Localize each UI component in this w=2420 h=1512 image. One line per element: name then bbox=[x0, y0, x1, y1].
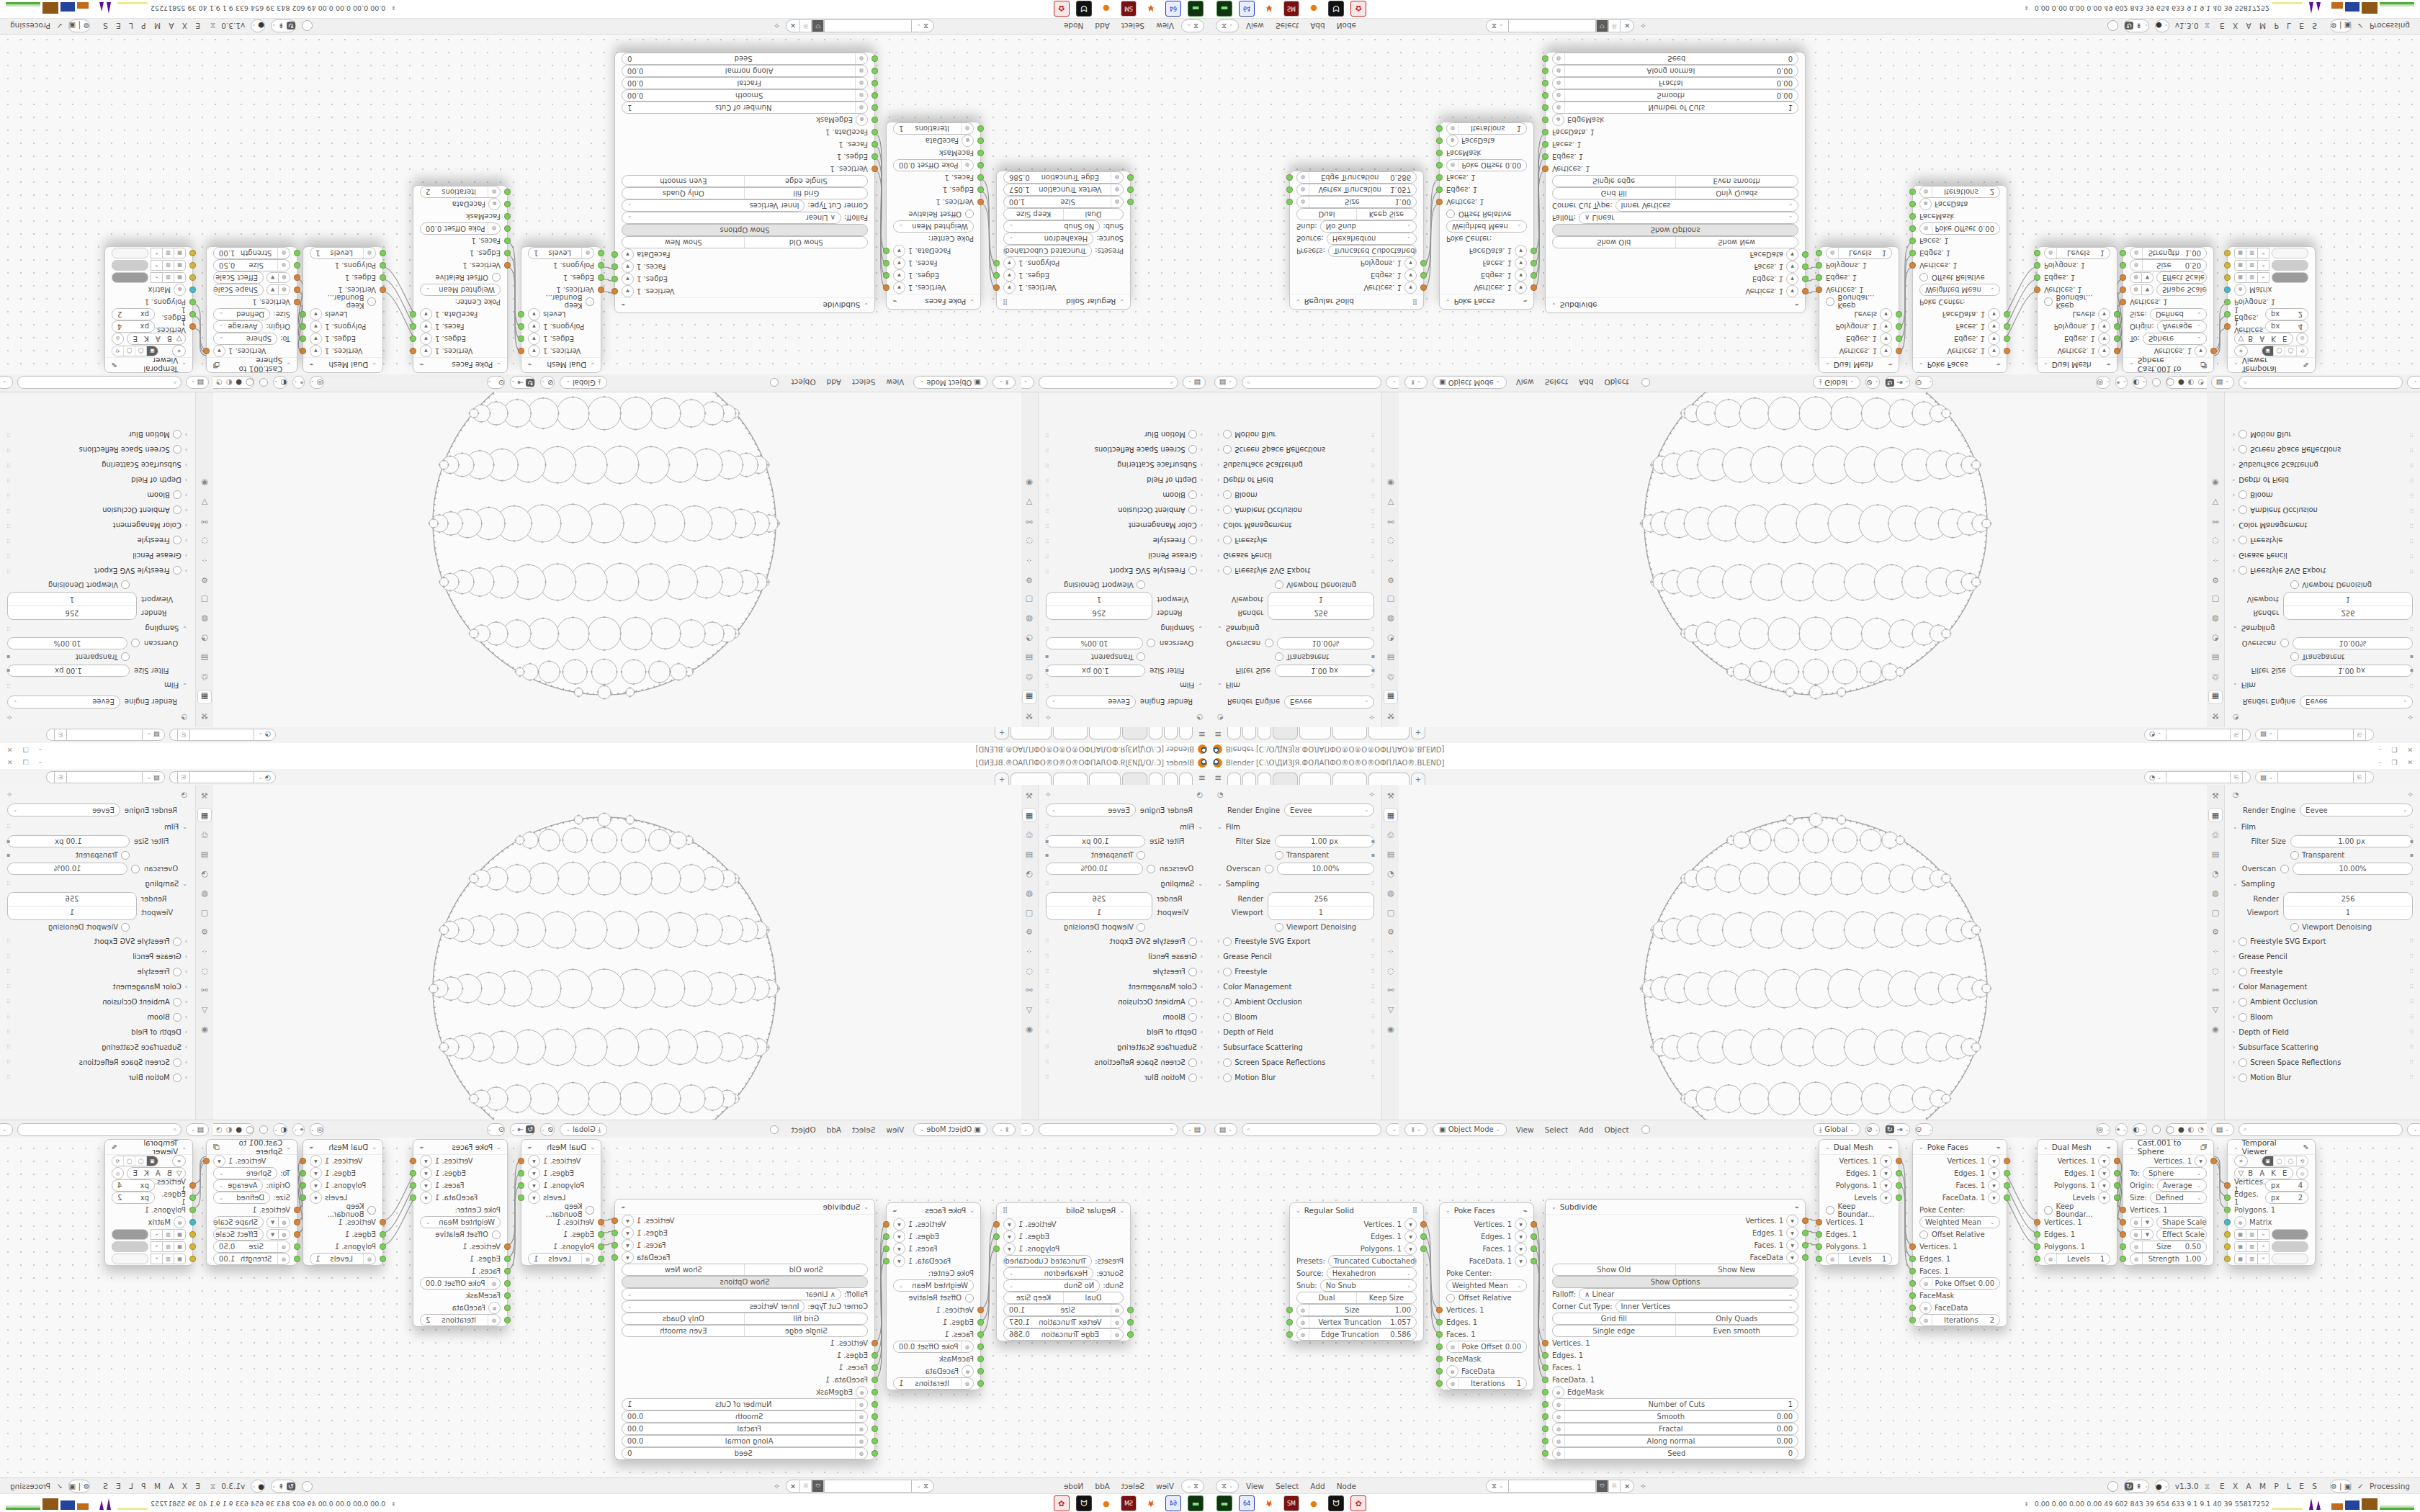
node-regular-solid[interactable]: ⌄Regular Solid⠿Vertices. 1▼Edges. 1▼Poly… bbox=[996, 171, 1131, 310]
socket-green[interactable] bbox=[1420, 260, 1427, 266]
node-editor-menu-node[interactable]: Node bbox=[1337, 22, 1356, 30]
socket-green[interactable] bbox=[1436, 138, 1443, 144]
socket-green[interactable] bbox=[598, 1243, 604, 1250]
socket-yellow[interactable] bbox=[2224, 1231, 2231, 1238]
socket-green[interactable] bbox=[1816, 1256, 1822, 1262]
taskbar-app-icon-4[interactable]: ● bbox=[1306, 1, 1322, 17]
socket-green[interactable] bbox=[977, 1319, 984, 1326]
ball-dropdown[interactable]: ● ⌄ bbox=[2155, 1480, 2169, 1493]
socket-orange[interactable] bbox=[2210, 1158, 2217, 1164]
socket-green[interactable] bbox=[871, 1352, 878, 1359]
socket-green[interactable] bbox=[2224, 1207, 2231, 1213]
socket-orange[interactable] bbox=[871, 166, 878, 172]
node-editor-menu-select[interactable]: Select bbox=[1276, 1482, 1299, 1490]
socket-green[interactable] bbox=[504, 1280, 511, 1287]
socket-green[interactable] bbox=[1531, 1258, 1537, 1264]
taskbar-app-icon-1[interactable]: 64 bbox=[1165, 1, 1181, 17]
socket-orange[interactable] bbox=[294, 299, 300, 305]
socket-green[interactable] bbox=[189, 299, 196, 305]
node-dual-mesh[interactable]: ⌄Dual Mesh⌁Vertices. 1▼Edges. 1▼Polygons… bbox=[1819, 1139, 1899, 1266]
socket-green[interactable] bbox=[1436, 186, 1443, 193]
socket-green[interactable] bbox=[871, 1364, 878, 1371]
fake-user-shield-button[interactable]: 🛡 bbox=[812, 19, 824, 32]
socket-green[interactable] bbox=[300, 336, 306, 342]
socket-green[interactable] bbox=[504, 201, 511, 207]
node-editor-menu-add[interactable]: Add bbox=[1310, 1482, 1325, 1490]
node-regular-solid[interactable]: ⌄Regular Solid⠿Vertices. 1▼Edges. 1▼Poly… bbox=[996, 1202, 1131, 1341]
node-dual-mesh[interactable]: ⌄Dual Mesh⌁Vertices. 1▼Edges. 1▼Polygons… bbox=[302, 246, 383, 373]
socket-orange[interactable] bbox=[1542, 166, 1549, 172]
node-cast-001-to-sphere[interactable]: ⌄Cast.001 to Sphere🗇Vertices. 1▼To:Spher… bbox=[206, 1139, 297, 1266]
unlink-button[interactable]: ✕ bbox=[786, 1480, 799, 1493]
taskbar-app-icon-0[interactable]: ▬ bbox=[1216, 1, 1232, 17]
socket-green[interactable] bbox=[294, 1243, 300, 1250]
socket-green[interactable] bbox=[1802, 1254, 1809, 1261]
socket-green[interactable] bbox=[871, 1426, 878, 1432]
taskbar-app-icon-0[interactable]: ▬ bbox=[1188, 1495, 1204, 1511]
examples-menu[interactable]: E X A M P L E S bbox=[2220, 22, 2320, 30]
socket-green[interactable] bbox=[2004, 336, 2010, 342]
socket-orange[interactable] bbox=[611, 288, 618, 294]
node-poke-faces[interactable]: ⌄Poke Faces⌁Vertices. 1▼Edges. 1▼Faces. … bbox=[886, 1202, 981, 1390]
socket-orange[interactable] bbox=[518, 1158, 524, 1164]
unlink-button[interactable]: ✕ bbox=[1621, 1480, 1634, 1493]
node-cast-001-to-sphere[interactable]: ⌄Cast.001 to Sphere🗇Vertices. 1▼To:Spher… bbox=[2123, 1139, 2214, 1266]
node-subdivide[interactable]: ⌄Subdivide⌁Vertices. 1▼Edges. 1▼Faces. 1… bbox=[614, 52, 875, 313]
socket-green[interactable] bbox=[871, 153, 878, 160]
socket-green[interactable] bbox=[300, 323, 306, 330]
tree-name-field[interactable] bbox=[824, 19, 911, 32]
socket-green[interactable] bbox=[1542, 1438, 1549, 1444]
socket-orange[interactable] bbox=[1802, 288, 1809, 294]
socket-green[interactable] bbox=[871, 1413, 878, 1420]
socket-green[interactable] bbox=[518, 336, 524, 342]
socket-green[interactable] bbox=[1436, 125, 1443, 132]
socket-orange[interactable] bbox=[1436, 1307, 1443, 1313]
settings-group[interactable]: ⚙ | ▣ bbox=[2330, 19, 2352, 32]
socket-green[interactable] bbox=[1816, 274, 1822, 281]
socket-orange[interactable] bbox=[1896, 348, 1902, 354]
socket-green[interactable] bbox=[518, 1194, 524, 1201]
socket-green[interactable] bbox=[883, 1233, 889, 1240]
socket-green[interactable] bbox=[1436, 1356, 1443, 1362]
socket-green[interactable] bbox=[1909, 225, 1916, 232]
taskbar-app-icon-1[interactable]: 64 bbox=[1239, 1, 1255, 17]
snap-group[interactable]: ↻ ⇞ ⌄ bbox=[271, 19, 296, 32]
socket-orange[interactable] bbox=[300, 1158, 306, 1164]
socket-green[interactable] bbox=[2224, 1194, 2231, 1201]
socket-orange[interactable] bbox=[598, 287, 604, 293]
socket-green[interactable] bbox=[977, 162, 984, 168]
tree-name-field[interactable] bbox=[1509, 1480, 1596, 1493]
tree-select-button[interactable]: ⧖ ⌄ bbox=[911, 19, 934, 32]
socket-green[interactable] bbox=[189, 1194, 196, 1201]
socket-green[interactable] bbox=[2114, 1170, 2120, 1176]
socket-green[interactable] bbox=[2120, 262, 2126, 269]
socket-green[interactable] bbox=[1909, 1280, 1916, 1287]
socket-orange[interactable] bbox=[1816, 1219, 1822, 1225]
node-editor-menu-node[interactable]: Node bbox=[1337, 1482, 1356, 1490]
socket-green[interactable] bbox=[1420, 272, 1427, 279]
node-temporal-viewer[interactable]: ⌄Temporal Viewer✎👁▣◯◯⟲▽B A K E◎Vertices.… bbox=[2227, 1139, 2316, 1266]
node-poke-faces[interactable]: ⌄Poke Faces⌁Vertices. 1▼Edges. 1▼Faces. … bbox=[1912, 1139, 2007, 1327]
socket-green[interactable] bbox=[380, 262, 386, 269]
node-poke-faces[interactable]: ⌄Poke Faces⌁Vertices. 1▼Edges. 1▼Faces. … bbox=[1912, 185, 2007, 373]
socket-green[interactable] bbox=[1531, 260, 1537, 266]
socket-green[interactable] bbox=[1542, 1352, 1549, 1359]
socket-green[interactable] bbox=[598, 274, 604, 281]
socket-green[interactable] bbox=[1909, 213, 1916, 220]
socket-green[interactable] bbox=[410, 1194, 416, 1201]
socket-orange[interactable] bbox=[2224, 1182, 2231, 1189]
pin-icon[interactable]: ✧ bbox=[774, 1482, 780, 1490]
socket-green[interactable] bbox=[1802, 1242, 1809, 1248]
socket-green[interactable] bbox=[1816, 1231, 1822, 1238]
socket-green[interactable] bbox=[300, 1194, 306, 1201]
socket-green[interactable] bbox=[1531, 1233, 1537, 1240]
socket-orange[interactable] bbox=[993, 1221, 1000, 1228]
node-editor-menu-add[interactable]: Add bbox=[1310, 22, 1325, 30]
socket-green[interactable] bbox=[2004, 1194, 2010, 1201]
socket-green[interactable] bbox=[2114, 1182, 2120, 1189]
socket-green[interactable] bbox=[1909, 1317, 1916, 1323]
socket-green[interactable] bbox=[1127, 1319, 1134, 1326]
socket-green[interactable] bbox=[1127, 186, 1134, 193]
taskbar-app-icon-0[interactable]: ▬ bbox=[1216, 1495, 1232, 1511]
socket-orange[interactable] bbox=[2224, 323, 2231, 330]
socket-green[interactable] bbox=[1802, 1230, 1809, 1236]
socket-orange[interactable] bbox=[1420, 1221, 1427, 1228]
ball-dropdown[interactable]: ● ⌄ bbox=[251, 19, 265, 32]
processing-check-icon[interactable]: ✓ bbox=[2357, 1482, 2364, 1490]
socket-green[interactable] bbox=[611, 1230, 618, 1236]
node-editor[interactable]: ⌄Regular Solid⠿Vertices. 1▼Edges. 1▼Poly… bbox=[0, 1138, 1210, 1477]
taskbar-app-icon-4[interactable]: ● bbox=[1098, 1, 1114, 17]
socket-green[interactable] bbox=[2004, 323, 2010, 330]
socket-green[interactable] bbox=[977, 186, 984, 193]
socket-green[interactable] bbox=[883, 1246, 889, 1252]
socket-green[interactable] bbox=[1909, 189, 1916, 195]
socket-orange[interactable] bbox=[2120, 1219, 2126, 1225]
node-regular-solid[interactable]: ⌄Regular Solid⠿Vertices. 1▼Edges. 1▼Poly… bbox=[1289, 171, 1424, 310]
socket-green[interactable] bbox=[1542, 141, 1549, 148]
socket-green[interactable] bbox=[1531, 248, 1537, 254]
socket-orange[interactable] bbox=[977, 1307, 984, 1313]
socket-orange[interactable] bbox=[1816, 287, 1822, 293]
socket-orange[interactable] bbox=[189, 323, 196, 330]
socket-orange[interactable] bbox=[189, 1182, 196, 1189]
node-editor-menu-view[interactable]: View bbox=[1246, 1482, 1264, 1490]
socket-green[interactable] bbox=[1896, 311, 1902, 318]
socket-cyan[interactable] bbox=[189, 287, 196, 293]
socket-orange[interactable] bbox=[203, 348, 210, 354]
socket-yellow[interactable] bbox=[2224, 250, 2231, 256]
taskbar-app-icon-5[interactable]: ᗢ bbox=[1076, 1, 1092, 17]
socket-green[interactable] bbox=[518, 311, 524, 318]
socket-green[interactable] bbox=[504, 250, 511, 256]
socket-green[interactable] bbox=[410, 311, 416, 318]
new-copy-button[interactable]: ⎘ bbox=[1608, 1480, 1621, 1493]
socket-orange[interactable] bbox=[2114, 348, 2120, 354]
socket-green[interactable] bbox=[380, 1243, 386, 1250]
socket-green[interactable] bbox=[1420, 1233, 1427, 1240]
snap-group[interactable]: ↻ ⇞ ⌄ bbox=[271, 1480, 296, 1493]
socket-green[interactable] bbox=[1286, 174, 1293, 181]
taskbar-app-icon-2[interactable]: 🦊 bbox=[1261, 1, 1277, 17]
socket-green[interactable] bbox=[611, 264, 618, 270]
socket-green[interactable] bbox=[504, 1317, 511, 1323]
socket-green[interactable] bbox=[1542, 55, 1549, 62]
pin-icon[interactable]: ✧ bbox=[1640, 1482, 1646, 1490]
socket-green[interactable] bbox=[1542, 1450, 1549, 1457]
socket-cyan[interactable] bbox=[189, 1219, 196, 1225]
socket-green[interactable] bbox=[1909, 1268, 1916, 1274]
node-dual-mesh[interactable]: ⌄Dual Mesh⌁Vertices. 1▼Edges. 1▼Polygons… bbox=[521, 1139, 601, 1266]
socket-orange[interactable] bbox=[2210, 348, 2217, 354]
node-dual-mesh[interactable]: ⌄Dual Mesh⌁Vertices. 1▼Edges. 1▼Polygons… bbox=[302, 1139, 383, 1266]
socket-yellow[interactable] bbox=[2224, 262, 2231, 269]
examples-menu[interactable]: E X A M P L E S bbox=[100, 1482, 200, 1490]
socket-green[interactable] bbox=[871, 1438, 878, 1444]
socket-orange[interactable] bbox=[2034, 1219, 2040, 1225]
socket-green[interactable] bbox=[504, 1292, 511, 1299]
socket-green[interactable] bbox=[993, 272, 1000, 279]
socket-orange[interactable] bbox=[294, 274, 300, 281]
socket-green[interactable] bbox=[871, 80, 878, 86]
socket-yellow[interactable] bbox=[189, 250, 196, 256]
socket-green[interactable] bbox=[1542, 1426, 1549, 1432]
socket-green[interactable] bbox=[2034, 1231, 2040, 1238]
node-editor[interactable]: ⌄Regular Solid⠿Vertices. 1▼Edges. 1▼Poly… bbox=[1210, 1138, 2420, 1477]
socket-green[interactable] bbox=[1816, 262, 1822, 269]
socket-orange[interactable] bbox=[203, 1158, 210, 1164]
taskbar-app-icon-3[interactable]: SM bbox=[1121, 1495, 1137, 1511]
socket-green[interactable] bbox=[1542, 1401, 1549, 1408]
socket-green[interactable] bbox=[993, 1233, 1000, 1240]
socket-yellow[interactable] bbox=[189, 1243, 196, 1250]
socket-green[interactable] bbox=[993, 260, 1000, 266]
taskbar-app-icon-2[interactable]: 🦊 bbox=[1143, 1, 1159, 17]
socket-green[interactable] bbox=[380, 250, 386, 256]
socket-green[interactable] bbox=[1542, 153, 1549, 160]
tree-name-field[interactable] bbox=[1509, 19, 1596, 32]
socket-green[interactable] bbox=[1436, 174, 1443, 181]
socket-green[interactable] bbox=[380, 274, 386, 281]
taskbar-app-icon-3[interactable]: SM bbox=[1283, 1, 1299, 17]
socket-orange[interactable] bbox=[1909, 262, 1916, 269]
node-editor-menu-add[interactable]: Add bbox=[1095, 22, 1109, 30]
socket-green[interactable] bbox=[504, 1305, 511, 1311]
socket-green[interactable] bbox=[2034, 274, 2040, 281]
node-poke-faces[interactable]: ⌄Poke Faces⌁Vertices. 1▼Edges. 1▼Faces. … bbox=[1439, 1202, 1534, 1390]
socket-green[interactable] bbox=[871, 104, 878, 111]
socket-green[interactable] bbox=[598, 1231, 604, 1238]
socket-green[interactable] bbox=[300, 1182, 306, 1189]
node-dual-mesh[interactable]: ⌄Dual Mesh⌁Vertices. 1▼Edges. 1▼Polygons… bbox=[521, 246, 601, 373]
socket-green[interactable] bbox=[871, 1450, 878, 1457]
ball-dropdown[interactable]: ● ⌄ bbox=[251, 1480, 265, 1493]
socket-green[interactable] bbox=[2120, 1243, 2126, 1250]
socket-green[interactable] bbox=[504, 213, 511, 220]
node-temporal-viewer[interactable]: ⌄Temporal Viewer✎👁▣◯◯⟲▽B A K E◎Vertices.… bbox=[2227, 246, 2316, 373]
node-poke-faces[interactable]: ⌄Poke Faces⌁Vertices. 1▼Edges. 1▼Faces. … bbox=[886, 122, 981, 310]
node-temporal-viewer[interactable]: ⌄Temporal Viewer✎👁▣◯◯⟲▽B A K E◎Vertices.… bbox=[104, 246, 193, 373]
socket-orange[interactable] bbox=[294, 287, 300, 293]
socket-orange[interactable] bbox=[504, 262, 511, 269]
socket-yellow[interactable] bbox=[2224, 274, 2231, 281]
socket-green[interactable] bbox=[1909, 201, 1916, 207]
socket-green[interactable] bbox=[1802, 264, 1809, 270]
node-cast-001-to-sphere[interactable]: ⌄Cast.001 to Sphere🗇Vertices. 1▼To:Spher… bbox=[206, 246, 297, 373]
socket-green[interactable] bbox=[1436, 162, 1443, 168]
socket-green[interactable] bbox=[1436, 1380, 1443, 1387]
socket-green[interactable] bbox=[598, 250, 604, 256]
socket-green[interactable] bbox=[2034, 1256, 2040, 1262]
tree-type-button[interactable]: ⧖ ⌄ bbox=[1181, 1480, 1204, 1493]
socket-green[interactable] bbox=[504, 238, 511, 244]
socket-green[interactable] bbox=[1802, 276, 1809, 282]
socket-green[interactable] bbox=[1436, 1344, 1443, 1350]
socket-green[interactable] bbox=[1127, 1307, 1134, 1313]
socket-green[interactable] bbox=[977, 125, 984, 132]
socket-green[interactable] bbox=[1542, 1364, 1549, 1371]
socket-yellow[interactable] bbox=[189, 262, 196, 269]
socket-orange[interactable] bbox=[993, 284, 1000, 291]
socket-green[interactable] bbox=[1542, 104, 1549, 111]
socket-green[interactable] bbox=[189, 1207, 196, 1213]
taskbar-app-icon-5[interactable]: ᗢ bbox=[1328, 1, 1344, 17]
settings-group[interactable]: ⚙ | ▣ bbox=[68, 1480, 90, 1493]
socket-green[interactable] bbox=[1420, 1246, 1427, 1252]
socket-orange[interactable] bbox=[1909, 1243, 1916, 1250]
node-poke-faces[interactable]: ⌄Poke Faces⌁Vertices. 1▼Edges. 1▼Faces. … bbox=[413, 185, 508, 373]
socket-orange[interactable] bbox=[294, 1219, 300, 1225]
socket-yellow[interactable] bbox=[2224, 1243, 2231, 1250]
socket-green[interactable] bbox=[871, 129, 878, 135]
pin-icon[interactable]: ✧ bbox=[1640, 22, 1646, 30]
socket-green[interactable] bbox=[380, 1256, 386, 1262]
socket-green[interactable] bbox=[294, 1256, 300, 1262]
socket-green[interactable] bbox=[518, 1182, 524, 1189]
socket-green[interactable] bbox=[883, 1258, 889, 1264]
socket-green[interactable] bbox=[1286, 199, 1293, 205]
annotation-circle[interactable] bbox=[302, 1481, 313, 1492]
socket-green[interactable] bbox=[1286, 186, 1293, 193]
socket-green[interactable] bbox=[189, 311, 196, 318]
socket-green[interactable] bbox=[1896, 1194, 1902, 1201]
socket-green[interactable] bbox=[977, 1368, 984, 1374]
node-editor-menu-view[interactable]: View bbox=[1156, 1482, 1174, 1490]
fake-user-shield-button[interactable]: 🛡 bbox=[1596, 1480, 1608, 1493]
socket-green[interactable] bbox=[883, 248, 889, 254]
socket-green[interactable] bbox=[1436, 1319, 1443, 1326]
socket-green[interactable] bbox=[294, 262, 300, 269]
socket-green[interactable] bbox=[1896, 323, 1902, 330]
socket-green[interactable] bbox=[871, 92, 878, 99]
node-editor-menu-select[interactable]: Select bbox=[1121, 1482, 1144, 1490]
socket-green[interactable] bbox=[611, 1242, 618, 1248]
socket-green[interactable] bbox=[1542, 117, 1549, 123]
socket-orange[interactable] bbox=[518, 348, 524, 354]
socket-green[interactable] bbox=[871, 1401, 878, 1408]
fake-user-shield-button[interactable]: 🛡 bbox=[1596, 19, 1608, 32]
node-editor[interactable]: ⌄Regular Solid⠿Vertices. 1▼Edges. 1▼Poly… bbox=[1210, 35, 2420, 374]
socket-green[interactable] bbox=[1896, 1182, 1902, 1189]
socket-green[interactable] bbox=[871, 1377, 878, 1383]
node-editor-menu-node[interactable]: Node bbox=[1064, 22, 1083, 30]
taskbar-app-icon-6[interactable]: ✿ bbox=[1054, 1495, 1070, 1511]
socket-green[interactable] bbox=[410, 323, 416, 330]
socket-green[interactable] bbox=[1127, 174, 1134, 181]
taskbar-app-icon-3[interactable]: SM bbox=[1283, 1495, 1299, 1511]
socket-orange[interactable] bbox=[2034, 287, 2040, 293]
taskbar-app-icon-4[interactable]: ● bbox=[1306, 1495, 1322, 1511]
socket-orange[interactable] bbox=[2120, 274, 2126, 281]
tree-type-button[interactable]: ⧖ ⌄ bbox=[1216, 19, 1239, 32]
socket-green[interactable] bbox=[611, 251, 618, 258]
socket-green[interactable] bbox=[1909, 1305, 1916, 1311]
socket-green[interactable] bbox=[504, 1256, 511, 1262]
pin-icon[interactable]: ✧ bbox=[774, 22, 780, 30]
socket-green[interactable] bbox=[1436, 1331, 1443, 1338]
socket-green[interactable] bbox=[2114, 336, 2120, 342]
node-editor[interactable]: ⌄Regular Solid⠿Vertices. 1▼Edges. 1▼Poly… bbox=[0, 35, 1210, 374]
taskbar-app-icon-0[interactable]: ▬ bbox=[1188, 1, 1204, 17]
taskbar-app-icon-2[interactable]: 🦊 bbox=[1143, 1495, 1159, 1511]
socket-green[interactable] bbox=[1909, 1256, 1916, 1262]
socket-green[interactable] bbox=[2114, 323, 2120, 330]
socket-green[interactable] bbox=[1816, 250, 1822, 256]
socket-orange[interactable] bbox=[1420, 284, 1427, 291]
socket-orange[interactable] bbox=[2004, 348, 2010, 354]
unlink-button[interactable]: ✕ bbox=[786, 19, 799, 32]
socket-orange[interactable] bbox=[871, 1340, 878, 1346]
socket-orange[interactable] bbox=[2120, 1231, 2126, 1238]
socket-green[interactable] bbox=[1909, 1292, 1916, 1299]
socket-green[interactable] bbox=[977, 138, 984, 144]
socket-green[interactable] bbox=[871, 141, 878, 148]
socket-orange[interactable] bbox=[2120, 287, 2126, 293]
node-editor-menu-view[interactable]: View bbox=[1246, 22, 1264, 30]
tree-type-button[interactable]: ⧖ ⌄ bbox=[1181, 19, 1204, 32]
tree-type-button[interactable]: ⧖ ⌄ bbox=[1216, 1480, 1239, 1493]
socket-green[interactable] bbox=[611, 276, 618, 282]
taskbar-app-icon-4[interactable]: ● bbox=[1098, 1495, 1114, 1511]
socket-green[interactable] bbox=[2004, 1170, 2010, 1176]
socket-green[interactable] bbox=[1896, 1170, 1902, 1176]
socket-green[interactable] bbox=[993, 1246, 1000, 1252]
socket-orange[interactable] bbox=[883, 284, 889, 291]
socket-green[interactable] bbox=[2034, 250, 2040, 256]
socket-green[interactable] bbox=[300, 311, 306, 318]
tree-select-button[interactable]: ⧖ ⌄ bbox=[1486, 1480, 1509, 1493]
node-dual-mesh[interactable]: ⌄Dual Mesh⌁Vertices. 1▼Edges. 1▼Polygons… bbox=[2037, 246, 2117, 373]
socket-orange[interactable] bbox=[410, 348, 416, 354]
socket-green[interactable] bbox=[883, 272, 889, 279]
socket-green[interactable] bbox=[1909, 238, 1916, 244]
socket-green[interactable] bbox=[977, 1380, 984, 1387]
socket-green[interactable] bbox=[977, 1356, 984, 1362]
socket-orange[interactable] bbox=[1896, 1158, 1902, 1164]
socket-green[interactable] bbox=[1542, 68, 1549, 74]
node-subdivide[interactable]: ⌄Subdivide⌁Vertices. 1▼Edges. 1▼Faces. 1… bbox=[1545, 52, 1806, 313]
socket-green[interactable] bbox=[871, 117, 878, 123]
taskbar-app-icon-5[interactable]: ᗢ bbox=[1076, 1495, 1092, 1511]
socket-green[interactable] bbox=[1802, 251, 1809, 258]
socket-green[interactable] bbox=[518, 1170, 524, 1176]
socket-green[interactable] bbox=[1896, 336, 1902, 342]
socket-green[interactable] bbox=[1286, 1331, 1293, 1338]
